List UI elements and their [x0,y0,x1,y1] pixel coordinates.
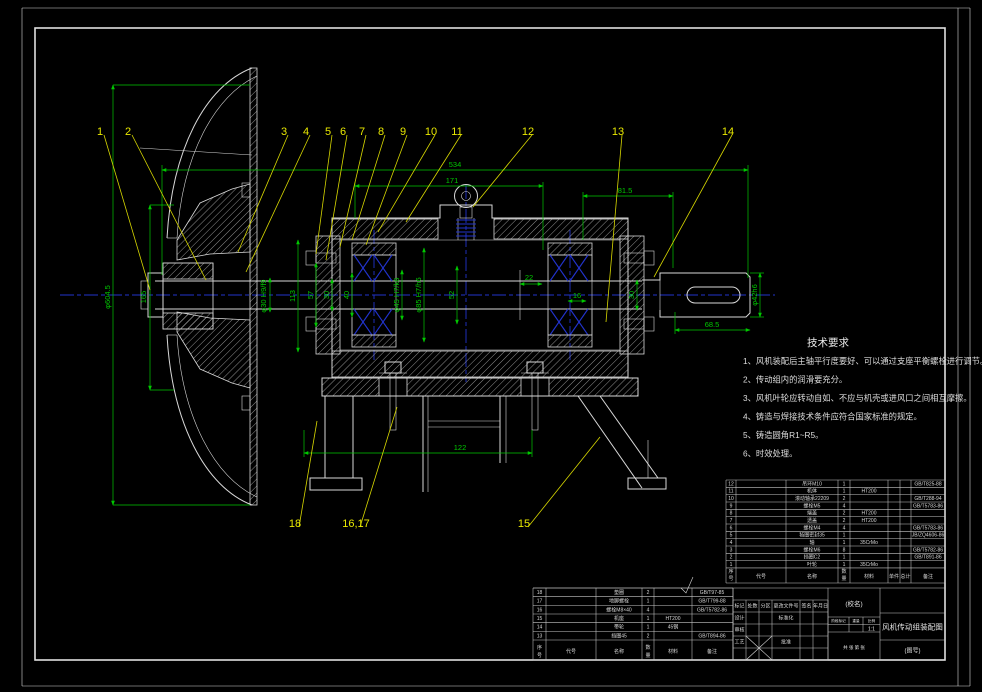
bom-cell: 4 [647,607,650,613]
callout-number: 16,17 [342,518,370,530]
callout-leader [473,135,532,207]
dimension-label: 81.5 [618,186,633,195]
bom-cell: 材料 [864,573,874,580]
callout-number: 18 [289,518,301,530]
bom-cell: 带轮 [614,624,624,631]
bom-cell: 螺栓M8×40 [606,606,632,613]
bom-table-lower: 18垫圈2GB/T97-8517地脚螺栓1GB/T799-8816螺栓M8×40… [533,588,733,660]
sheet-note: 共 张 第 张 [843,644,865,651]
bom-cell: 代号 [756,573,766,580]
bom-cell: 螺栓M5 [804,502,821,509]
bom-cell: 号 [728,576,733,582]
bom-cell: 45钢 [668,624,679,631]
bom-cell: 签名 [801,603,811,610]
bom-cell: 13 [537,633,543,639]
bom-cell: 35CrMo [860,540,878,546]
bom-cell: 12 [728,481,734,487]
drawing-code: (图号) [905,648,921,655]
callout-number: 7 [359,126,365,138]
bom-cell: 11 [728,489,733,495]
callout-number: 9 [400,126,406,138]
dimension-label: 16 [573,291,581,300]
bom-cell: 3 [730,547,733,553]
bom-cell: HT200 [861,511,876,517]
bom-cell: 15 [537,616,543,622]
callout-number: 6 [340,126,346,138]
bom-cell: 工艺 [734,640,744,646]
bom-cell: GB/T5783-86 [913,503,943,509]
drawing-canvas[interactable]: 53417181.5165φ604.5φ30 H9/f9113573040φ45… [0,0,982,692]
callout-number: 11 [451,126,462,138]
bom-cell: 备注 [707,648,717,655]
tech-requirement-item: 6、时效处理。 [743,449,797,459]
callout-number: 3 [281,126,287,138]
bom-cell: 标准化 [778,615,793,622]
callout-leader [299,421,317,527]
bom-cell: 1 [730,562,733,568]
dimension-label: 30 [627,291,636,299]
callout-number: 2 [125,126,131,138]
impeller-back-disc [250,68,257,505]
callout-number: 8 [378,126,384,138]
bom-cell: 审核 [734,627,744,634]
bom-cell: GB/T288-94 [914,496,941,502]
callout-number: 14 [722,126,734,138]
callout-leader [132,135,206,280]
callout-leader [528,437,600,527]
bom-cell: HT200 [665,616,680,622]
bom-cell: 7 [730,518,733,524]
bom-cell: 1 [843,481,846,487]
bom-cell: GB/T894-86 [698,633,725,639]
bom-cell: 1 [647,616,650,622]
callout-number: 10 [425,126,437,138]
bom-cell: 螺栓M6 [804,546,821,553]
bom-cell: GB/T891-86 [914,555,941,561]
dimension-label: φ30 H9/f9 [259,279,268,312]
bom-cell: 轴 [809,539,814,546]
bom-cell: 机座 [614,615,624,622]
weight-label: 重量 [852,618,860,623]
bom-cell: 9 [730,503,733,509]
bom-cell: 1 [843,555,846,561]
bom-cell: 更改文件号 [773,603,798,610]
bom-cell: 1 [843,489,846,495]
dimension-label: φ604.5 [103,285,112,309]
bom-cell: 10 [728,496,734,502]
tech-requirement-item: 5、铸造圆角R1~R5。 [743,430,823,440]
bom-cell: 18 [537,590,543,596]
bom-cell: 地脚螺栓 [609,598,629,605]
callout-leader [104,135,150,290]
bom-cell: 挡圈45 [611,632,627,639]
bom-cell: 2 [730,555,733,561]
callout-number: 1 [97,126,103,138]
callout-number: 13 [612,126,624,138]
bom-cell: 4 [730,540,733,546]
support-pedestal [310,362,666,492]
bom-cell: HT200 [861,489,876,495]
bom-cell: 2 [647,633,650,639]
bom-cell: 数 [645,644,650,651]
callout-leader [378,135,435,232]
bom-cell: 分区 [760,603,770,610]
bom-cell: 端盖 [807,510,817,517]
bom-cell: 批准 [781,639,791,646]
bom-cell: 滚动轴承22209 [795,495,829,502]
tech-requirement-item: 3、风机叶轮应转动自如、不应与机壳或进风口之间相互摩擦。 [743,393,972,403]
bom-cell: 备注 [923,573,933,580]
bom-cell: 8 [730,511,733,517]
callout-number: 4 [303,126,309,138]
bom-cell: 机体 [807,488,817,495]
bom-cell: 垫圈 [614,589,624,596]
bom-cell: JB/ZQ4606-86 [912,533,945,539]
bom-cell: 总计 [900,573,910,580]
dimension-label: φ85 H7/h6 [414,277,423,312]
bom-cell: 2 [843,511,846,517]
scale-value: 1:1 [868,627,875,633]
bom-cell: 1 [647,625,650,631]
bom-cell: 叶轮 [807,561,817,568]
bom-cell: 1 [843,562,846,568]
bom-cell: 35CrMo [860,562,878,568]
bom-cell: 1 [647,599,650,605]
tech-requirement-item: 1、风机装配后主轴平行度要好、可以通过支座平衡螺栓进行调节。 [743,356,982,366]
bom-cell: 材料 [668,648,678,655]
callout-number: 5 [325,126,331,138]
bom-cell: HT200 [861,518,876,524]
tech-requirement-item: 4、铸造与焊接技术条件应符合国家标准的规定。 [743,412,922,422]
callout-leader [360,407,397,527]
bom-cell: 14 [537,625,543,631]
bom-cell: 单件 [889,573,899,580]
bom-cell: 名称 [807,573,817,580]
bom-cell: 8 [843,547,846,553]
dimension-label: 57 [306,291,315,299]
bom-cell: 4 [843,503,846,509]
stage-label: 阶段标记 [831,618,846,623]
bom-cell: 设计 [734,615,744,622]
dimension-label: φ42h6 [750,284,759,306]
technical-requirements: 技术要求 [807,336,849,349]
bom-cell: 处数 [747,603,757,610]
bom-cell: 序 [537,644,542,651]
impeller-hub-lower [163,313,213,329]
dimension-label: 122 [454,443,467,452]
bom-cell: 5 [730,533,733,539]
bom-cell: 代号 [566,648,576,655]
scale-label: 比例 [868,618,876,623]
bom-cell: 透盖 [807,517,817,524]
dimension-label: 68.5 [705,320,720,329]
bom-cell: 挡圈C2 [804,554,821,561]
bom-cell: 吊环M10 [802,481,822,487]
bom-cell: 2 [843,496,846,502]
impeller-hub-upper [163,263,213,279]
bom-cell: 数 [841,568,846,575]
impeller-section [140,68,257,505]
bom-cell: GB/T799-88 [698,599,725,605]
bom-cell: GB/T97-85 [700,590,725,596]
bom-cell: 量 [841,575,846,582]
bom-cell: 6 [730,525,733,531]
tech-requirements-items: 1、风机装配后主轴平行度要好、可以通过支座平衡螺栓进行调节。2、传动组内的润滑要… [743,356,982,459]
bom-cell: GB/T5782-86 [913,547,943,553]
org-name: (校名) [845,599,862,608]
bom-cell: 螺栓M4 [804,524,821,531]
drawing-title: 风机传动组装配图 [882,622,943,632]
cad-drawing-screenshot: 53417181.5165φ604.5φ30 H9/f9113573040φ45… [0,0,982,692]
dimension-label: 534 [449,160,462,169]
bom-cell: 4 [843,525,846,531]
tech-requirement-item: 2、传动组内的润滑要充分。 [743,375,847,385]
bom-cell: 年月日 [813,603,828,610]
cap-bolts [306,251,654,331]
bom-cell: 1 [843,533,846,539]
bom-cell: 标记 [734,603,744,610]
bom-cell: GB/T5782-86 [697,607,727,613]
callout-number: 12 [522,126,534,138]
dimension-label: 40 [342,291,351,299]
bom-cell: 2 [647,590,650,596]
bom-cell: 量 [645,652,650,659]
dimension-label: 22 [525,273,533,282]
bom-cell: GB/T825-88 [914,481,941,487]
bom-cell: GB/T5783-86 [913,525,943,531]
title-block-revision-area: 标记处数分区更改文件号签名年月日设计标准化审核工艺批准 [733,600,828,660]
bom-cell: 序 [728,568,733,575]
bom-cell: 名称 [614,648,624,655]
tech-requirements-title: 技术要求 [807,336,849,349]
bom-cell: 1 [843,540,846,546]
bom-cell: 17 [537,599,543,605]
dimension-label: 30 [322,291,331,299]
surface-finish-symbol [681,577,693,593]
bearing-housing [306,205,654,378]
bom-cell: 号 [537,653,542,659]
dimension-label: 52 [447,291,456,299]
bom-table-upper: 12吊环M101GB/T825-8811机体1HT20010滚动轴承222092… [726,480,945,583]
bom-cell: 毡圈密封35 [799,532,825,539]
dimension-label: 171 [446,176,459,185]
dimension-label: φ45 H7/k6 [392,278,401,313]
bom-cell: 2 [843,518,846,524]
callout-leader [654,135,732,277]
callout-number: 15 [518,518,530,530]
dimension-label: 165 [139,291,148,304]
bom-cell: 16 [537,607,543,613]
dimension-label: 113 [288,290,297,302]
